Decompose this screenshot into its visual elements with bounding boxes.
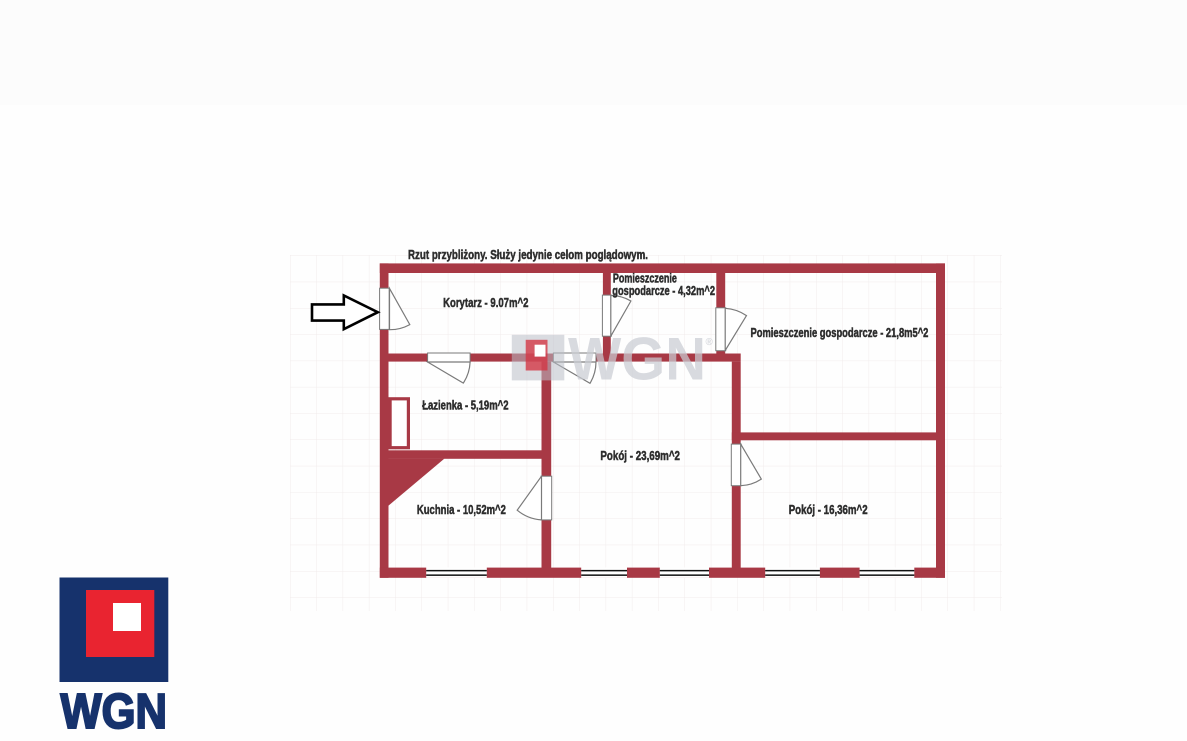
svg-text:WGN: WGN	[61, 685, 168, 739]
svg-text:Pokój - 23,69m^2: Pokój - 23,69m^2	[600, 449, 680, 463]
svg-text:Łazienka - 5,19m^2: Łazienka - 5,19m^2	[422, 399, 508, 413]
svg-text:Pomieszczenie gospodarcze - 21: Pomieszczenie gospodarcze - 21,8m5^2	[751, 326, 929, 340]
svg-text:®: ®	[706, 337, 714, 348]
svg-text:Rzut przybliżony. Służy jedyni: Rzut przybliżony. Służy jedynie celom po…	[408, 248, 648, 262]
svg-text:gospodarcze - 4,32m^2: gospodarcze - 4,32m^2	[612, 284, 715, 298]
svg-text:Pokój - 16,36m^2: Pokój - 16,36m^2	[789, 503, 868, 517]
svg-text:Korytarz - 9.07m^2: Korytarz - 9.07m^2	[443, 296, 528, 310]
svg-text:Kuchnia - 10,52m^2: Kuchnia - 10,52m^2	[417, 503, 506, 517]
svg-text:WGN: WGN	[568, 325, 706, 392]
